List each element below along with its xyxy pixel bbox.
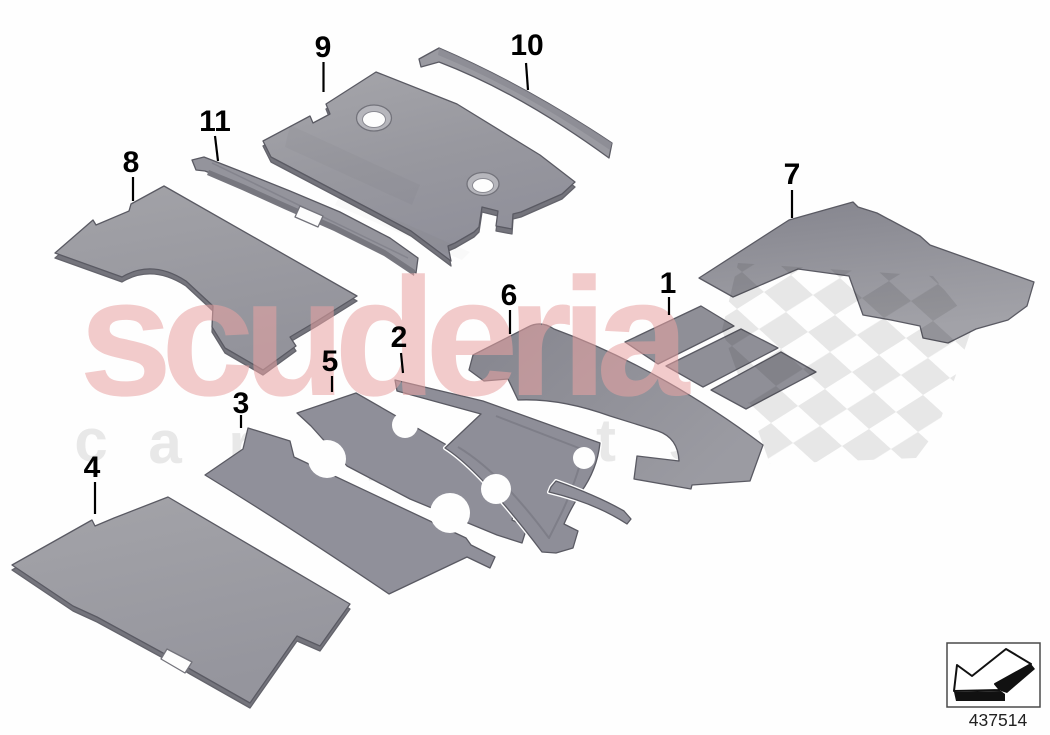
svg-text:9: 9 [315, 31, 332, 64]
svg-text:1: 1 [660, 267, 677, 300]
svg-text:6: 6 [501, 279, 518, 312]
svg-text:5: 5 [322, 345, 339, 378]
svg-text:4: 4 [84, 451, 101, 484]
svg-text:2: 2 [391, 321, 408, 354]
svg-text:11: 11 [199, 105, 231, 138]
svg-text:437514: 437514 [969, 710, 1028, 730]
svg-text:8: 8 [123, 146, 140, 179]
svg-text:10: 10 [510, 29, 543, 62]
svg-text:scuderia: scuderia [79, 243, 691, 431]
svg-text:7: 7 [784, 158, 801, 191]
